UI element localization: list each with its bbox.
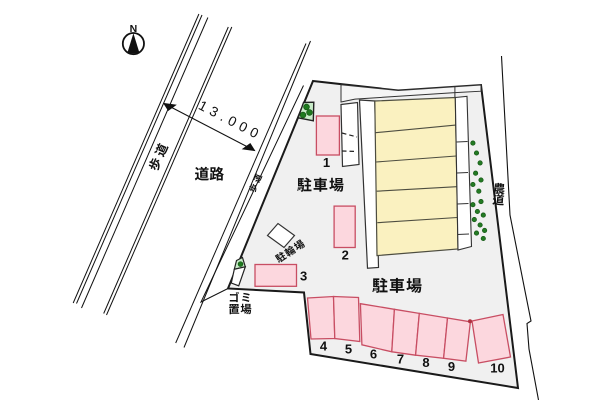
svg-text:7: 7 xyxy=(397,351,404,366)
svg-text:5: 5 xyxy=(345,341,352,356)
svg-text:3: 3 xyxy=(300,269,307,284)
svg-text:2: 2 xyxy=(342,247,349,262)
svg-text:4: 4 xyxy=(320,338,328,353)
svg-text:6: 6 xyxy=(370,346,377,361)
svg-text:9: 9 xyxy=(448,359,455,374)
svg-text:1: 1 xyxy=(323,155,330,170)
svg-text:N: N xyxy=(130,23,138,35)
svg-text:10: 10 xyxy=(490,360,504,375)
svg-text:8: 8 xyxy=(422,355,429,370)
